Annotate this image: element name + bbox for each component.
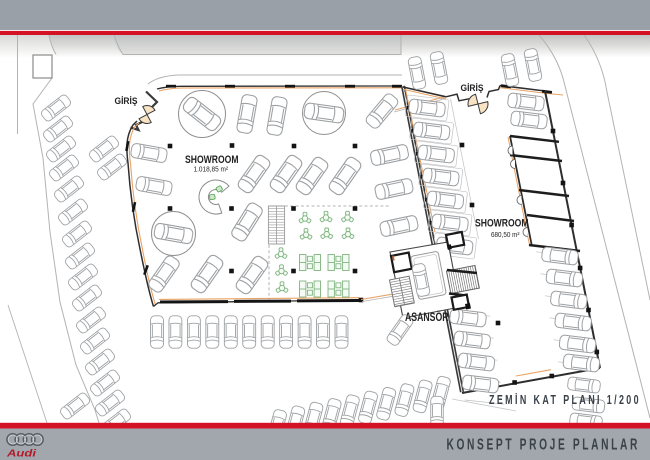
- svg-text:ASANSÖR: ASANSÖR: [405, 311, 449, 324]
- svg-text:1.018,85 m²: 1.018,85 m²: [194, 165, 229, 174]
- svg-text:SHOWROOM: SHOWROOM: [475, 218, 529, 230]
- svg-text:Audi: Audi: [6, 448, 38, 460]
- svg-text:ZEMİN KAT PLANI 1/200: ZEMİN KAT PLANI 1/200: [489, 392, 641, 407]
- svg-text:680,50 m²: 680,50 m²: [491, 230, 520, 239]
- svg-text:GİRİŞ: GİRİŞ: [461, 83, 484, 94]
- svg-text:GİRİŞ: GİRİŞ: [115, 96, 138, 107]
- svg-text:KONSEPT PROJE PLANLAR: KONSEPT PROJE PLANLAR: [447, 437, 641, 454]
